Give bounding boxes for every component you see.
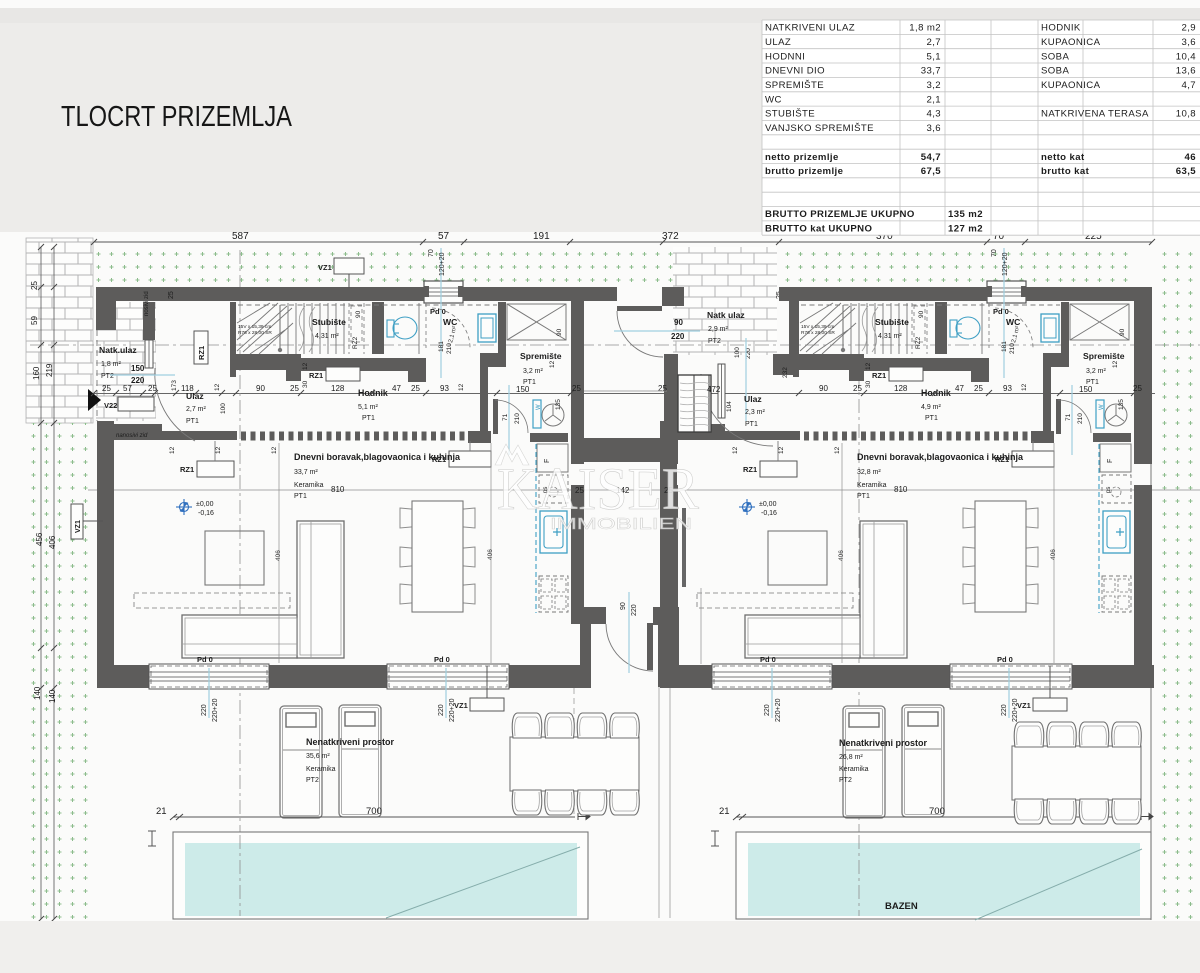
svg-text:BRUTTO kat UKUPNO: BRUTTO kat UKUPNO xyxy=(765,224,873,235)
svg-text:5,1: 5,1 xyxy=(926,51,941,62)
svg-text:220: 220 xyxy=(131,376,145,385)
svg-text:63,5: 63,5 xyxy=(1176,166,1197,177)
svg-text:PT1: PT1 xyxy=(186,418,199,425)
svg-text:DNEVNI DIO: DNEVNI DIO xyxy=(765,66,825,77)
svg-text:456: 456 xyxy=(35,532,44,546)
svg-text:2,3 m²: 2,3 m² xyxy=(745,409,766,416)
svg-text:KAISER: KAISER xyxy=(497,456,699,522)
svg-text:brutto prizemlje: brutto prizemlje xyxy=(765,166,843,177)
svg-text:2,9 m²: 2,9 m² xyxy=(708,326,729,333)
svg-text:13,6: 13,6 xyxy=(1176,66,1196,77)
svg-text:12: 12 xyxy=(214,383,221,391)
svg-text:220: 220 xyxy=(671,332,685,341)
svg-text:232: 232 xyxy=(782,367,789,378)
svg-text:104: 104 xyxy=(726,401,733,412)
svg-text:3,2: 3,2 xyxy=(926,80,941,91)
svg-text:Natk ulaz: Natk ulaz xyxy=(707,310,745,320)
svg-text:33,7: 33,7 xyxy=(921,66,941,77)
svg-text:3,6: 3,6 xyxy=(926,123,941,134)
svg-text:67,5: 67,5 xyxy=(921,166,942,177)
svg-text:HODNIK: HODNIK xyxy=(1041,23,1081,34)
svg-text:587: 587 xyxy=(232,231,249,242)
svg-text:2,7 m²: 2,7 m² xyxy=(186,406,207,413)
svg-text:33,7 m²: 33,7 m² xyxy=(294,469,318,476)
svg-text:PT1: PT1 xyxy=(745,421,758,428)
svg-text:472: 472 xyxy=(707,385,721,394)
svg-text:25: 25 xyxy=(30,281,39,290)
svg-text:4,7: 4,7 xyxy=(1181,80,1196,91)
svg-text:IMMOBILIEN: IMMOBILIEN xyxy=(550,516,692,533)
svg-text:KUPAONICA: KUPAONICA xyxy=(1041,80,1101,91)
svg-text:SOBA: SOBA xyxy=(1041,51,1069,62)
svg-text:10,4: 10,4 xyxy=(1176,51,1197,62)
svg-text:nanosivi zid: nanosivi zid xyxy=(116,433,148,439)
svg-text:TLOCRT PRIZEMLJA: TLOCRT PRIZEMLJA xyxy=(61,101,293,133)
svg-text:netto kat: netto kat xyxy=(1041,152,1085,163)
svg-text:PT2: PT2 xyxy=(708,338,721,345)
svg-text:173: 173 xyxy=(171,380,178,391)
svg-text:25: 25 xyxy=(102,384,111,393)
svg-text:VANJSKO SPREMIŠTE: VANJSKO SPREMIŠTE xyxy=(765,123,874,134)
svg-text:118: 118 xyxy=(181,384,194,393)
svg-text:100: 100 xyxy=(734,347,741,358)
svg-text:25: 25 xyxy=(658,384,667,393)
svg-text:90: 90 xyxy=(620,602,627,610)
svg-text:BRUTTO PRIZEMLJE UKUPNO: BRUTTO PRIZEMLJE UKUPNO xyxy=(765,209,915,220)
svg-text:54,7: 54,7 xyxy=(921,152,941,163)
svg-text:PT2: PT2 xyxy=(839,777,852,784)
svg-text:135 m2: 135 m2 xyxy=(948,209,983,220)
svg-text:57: 57 xyxy=(438,231,450,242)
svg-text:VZ1: VZ1 xyxy=(75,520,82,533)
svg-text:WC: WC xyxy=(765,94,782,105)
svg-text:35,6 m²: 35,6 m² xyxy=(306,753,330,760)
svg-text:RZ1: RZ1 xyxy=(197,346,206,360)
svg-text:150: 150 xyxy=(131,364,145,373)
svg-text:90: 90 xyxy=(674,318,683,327)
svg-text:PT2: PT2 xyxy=(306,777,319,784)
svg-text:ULAZ: ULAZ xyxy=(765,37,791,48)
svg-text:160: 160 xyxy=(32,366,41,380)
svg-text:STUBIŠTE: STUBIŠTE xyxy=(765,109,815,120)
svg-text:Nenatkriveni prostor: Nenatkriveni prostor xyxy=(839,738,928,748)
svg-text:2,9: 2,9 xyxy=(1181,23,1196,34)
svg-text:Keramika: Keramika xyxy=(839,766,869,773)
svg-text:32,8 m²: 32,8 m² xyxy=(857,469,881,476)
svg-text:5,1 m²: 5,1 m² xyxy=(358,404,379,411)
svg-text:25: 25 xyxy=(168,291,175,299)
svg-text:4,9 m²: 4,9 m² xyxy=(921,404,942,411)
svg-text:PT2: PT2 xyxy=(101,373,114,380)
svg-text:26,8 m²: 26,8 m² xyxy=(839,754,863,761)
svg-text:25: 25 xyxy=(572,384,581,393)
svg-text:1,8 m2: 1,8 m2 xyxy=(909,23,941,34)
svg-text:V22: V22 xyxy=(104,401,117,410)
svg-text:372: 372 xyxy=(662,231,679,242)
svg-text:57: 57 xyxy=(123,384,132,393)
svg-text:219: 219 xyxy=(45,363,54,377)
svg-text:Natk.ulaz: Natk.ulaz xyxy=(99,345,137,355)
svg-text:NATKRIVENA TERASA: NATKRIVENA TERASA xyxy=(1041,109,1149,120)
svg-text:2,7: 2,7 xyxy=(926,37,941,48)
svg-text:Ulaz: Ulaz xyxy=(744,394,762,404)
svg-text:4,3: 4,3 xyxy=(926,109,941,120)
svg-text:127 m2: 127 m2 xyxy=(948,224,983,235)
svg-text:nosivi zid: nosivi zid xyxy=(144,291,150,316)
svg-text:140: 140 xyxy=(33,686,42,700)
svg-text:25: 25 xyxy=(1133,384,1142,393)
svg-text:brutto kat: brutto kat xyxy=(1041,166,1090,177)
svg-text:2,1: 2,1 xyxy=(926,94,941,105)
svg-text:BAZEN: BAZEN xyxy=(885,901,918,912)
svg-text:140: 140 xyxy=(48,689,57,703)
svg-text:VZ1: VZ1 xyxy=(318,263,332,272)
svg-text:59: 59 xyxy=(30,316,39,325)
svg-text:3,6: 3,6 xyxy=(1181,37,1196,48)
svg-text:Keramika: Keramika xyxy=(306,766,336,773)
svg-text:KUPAONICA: KUPAONICA xyxy=(1041,37,1101,48)
svg-text:netto prizemlje: netto prizemlje xyxy=(765,152,839,163)
svg-text:SOBA: SOBA xyxy=(1041,66,1069,77)
svg-text:10,8: 10,8 xyxy=(1176,109,1196,120)
svg-text:NATKRIVENI ULAZ: NATKRIVENI ULAZ xyxy=(765,23,855,34)
svg-text:220: 220 xyxy=(631,604,638,616)
svg-text:HODNNI: HODNNI xyxy=(765,51,805,62)
svg-text:1,8 m²: 1,8 m² xyxy=(101,361,122,368)
svg-text:191: 191 xyxy=(533,231,550,242)
svg-text:406: 406 xyxy=(48,535,57,549)
svg-text:46: 46 xyxy=(1185,152,1196,163)
svg-text:Nenatkriveni prostor: Nenatkriveni prostor xyxy=(306,737,395,747)
svg-text:100: 100 xyxy=(220,403,227,414)
svg-text:SPREMIŠTE: SPREMIŠTE xyxy=(765,80,824,91)
